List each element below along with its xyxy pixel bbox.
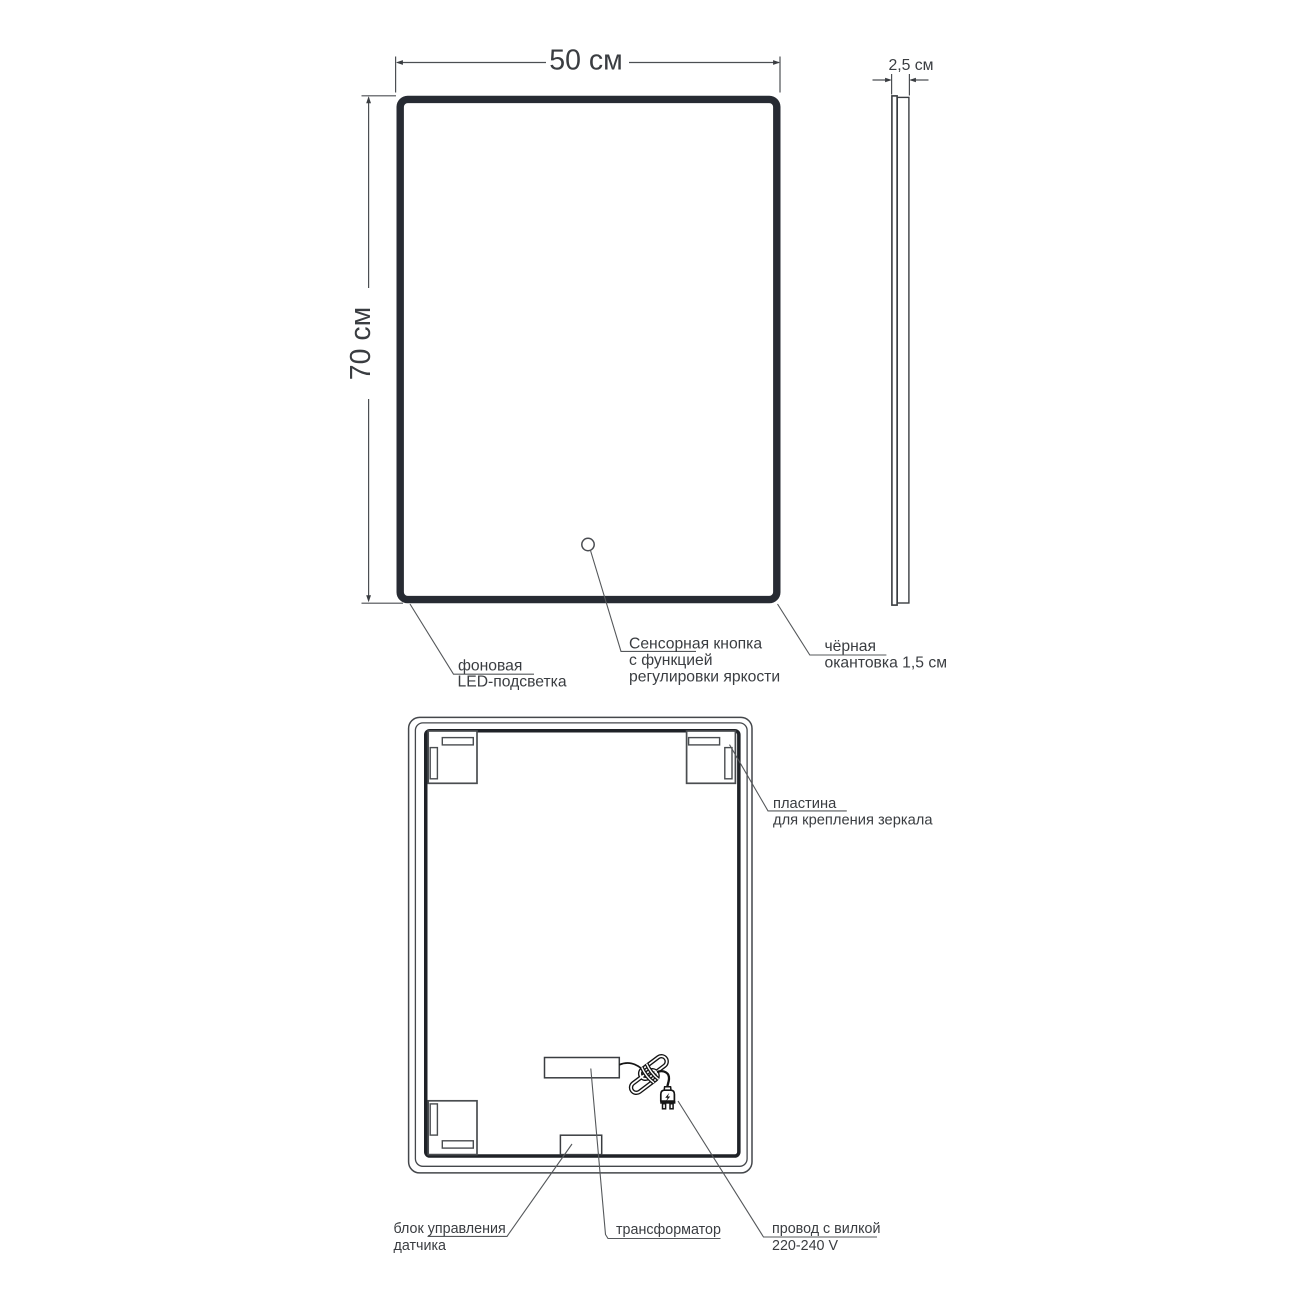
svg-text:пластина: пластина	[773, 796, 837, 812]
svg-text:окантовка 1,5 см: окантовка 1,5 см	[825, 655, 947, 672]
svg-text:с функцией: с функцией	[629, 652, 713, 669]
svg-text:чёрная: чёрная	[825, 638, 877, 655]
svg-text:LED-подсветка: LED-подсветка	[458, 673, 567, 690]
svg-text:провод с вилкой: провод с вилкой	[772, 1221, 880, 1237]
svg-text:трансформатор: трансформатор	[616, 1222, 721, 1238]
svg-text:Сенсорная кнопка: Сенсорная кнопка	[629, 636, 762, 653]
svg-text:70 см: 70 см	[345, 307, 377, 380]
svg-text:220-240 V: 220-240 V	[772, 1238, 838, 1254]
svg-text:фоновая: фоновая	[458, 657, 522, 674]
svg-text:2,5 см: 2,5 см	[888, 57, 933, 74]
svg-text:для крепления зеркала: для крепления зеркала	[773, 813, 933, 829]
svg-text:50 см: 50 см	[549, 44, 622, 76]
svg-text:датчика: датчика	[394, 1238, 447, 1254]
svg-text:регулировки яркости: регулировки яркости	[629, 669, 780, 686]
svg-text:блок управления: блок управления	[394, 1221, 506, 1237]
